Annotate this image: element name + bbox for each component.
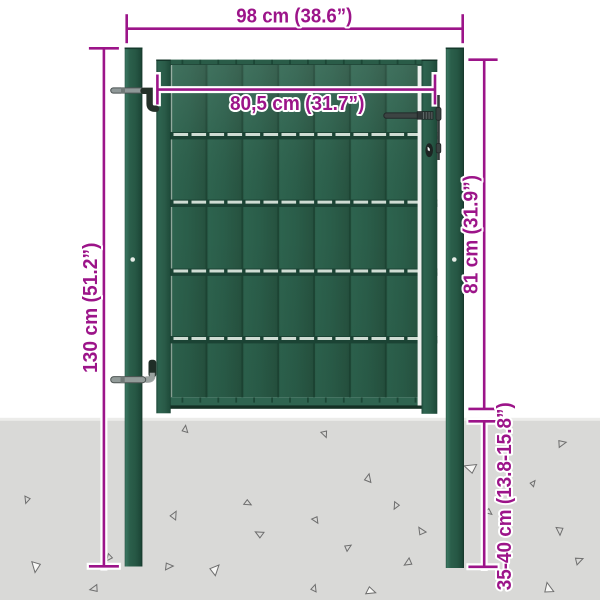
- svg-text:130 cm (51.2”): 130 cm (51.2”): [80, 243, 102, 374]
- svg-text:35-40 cm (13.8-15.8”): 35-40 cm (13.8-15.8”): [494, 402, 516, 590]
- svg-text:98 cm (38.6”): 98 cm (38.6”): [236, 6, 352, 28]
- svg-text:81 cm (31.9”): 81 cm (31.9”): [461, 175, 483, 294]
- svg-text:80,5 cm (31.7”): 80,5 cm (31.7”): [230, 93, 365, 115]
